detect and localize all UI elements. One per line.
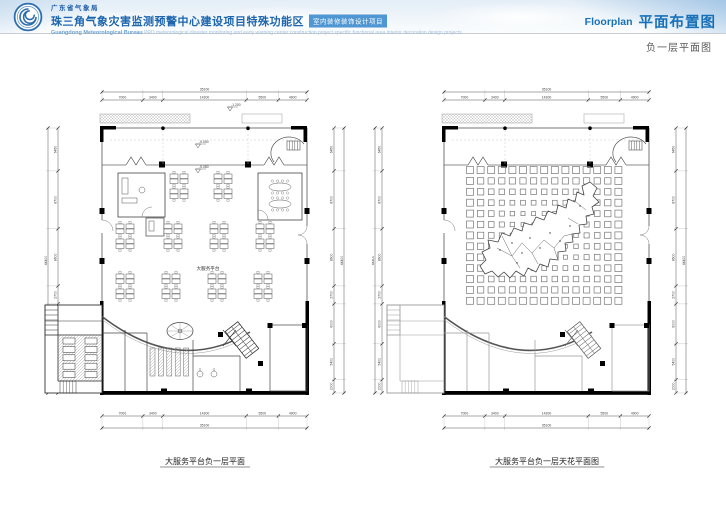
dim-label: 2000 bbox=[330, 382, 334, 390]
dim-label: 8700 bbox=[54, 196, 58, 204]
dim-label: 2000 bbox=[672, 382, 676, 390]
drawing-sheet: 广东省气象局 珠三角气象灾害监测预警中心建设项目特殊功能区室内装修装饰设计项目 … bbox=[0, 0, 726, 513]
floor-plan-drawing: 7000340014300550049003510070003400143005… bbox=[30, 78, 380, 498]
dim-label: 7000 bbox=[461, 412, 469, 416]
project-title-en: PRD meteorological disaster monitoring a… bbox=[144, 30, 462, 36]
bureau-logo-icon bbox=[13, 2, 43, 32]
plan-caption: 大服务平台负一层平面 bbox=[165, 456, 245, 466]
dim-label: 8700 bbox=[378, 196, 382, 204]
dim-label: 14300 bbox=[200, 412, 210, 416]
dim-label: 3400 bbox=[149, 96, 157, 100]
dim-label: 3400 bbox=[491, 412, 499, 416]
dim-label: 6450 bbox=[54, 146, 58, 154]
dim-label: 6450 bbox=[672, 146, 676, 154]
project-badge: 室内装修装饰设计项目 bbox=[309, 14, 387, 27]
dim-total-label: 35100 bbox=[542, 424, 552, 428]
dim-label: 6450 bbox=[330, 146, 334, 154]
elevation-label: -5.080 bbox=[199, 165, 209, 169]
dim-label: 4900 bbox=[631, 412, 639, 416]
dim-label: 5400 bbox=[330, 358, 334, 366]
dim-label: 14300 bbox=[542, 412, 552, 416]
dim-label: 14300 bbox=[200, 96, 210, 100]
dim-total-label: 35100 bbox=[542, 88, 552, 92]
dim-label: 5500 bbox=[601, 96, 609, 100]
dim-label: 2700 bbox=[330, 291, 334, 299]
dim-label: 7000 bbox=[461, 96, 469, 100]
dim-total-label: 44400 bbox=[44, 256, 48, 266]
dim-label: 6450 bbox=[378, 146, 382, 154]
sheet-header: 广东省气象局 珠三角气象灾害监测预警中心建设项目特殊功能区室内装修装饰设计项目 … bbox=[0, 0, 726, 34]
dim-label: 4900 bbox=[289, 96, 297, 100]
dim-label: 8700 bbox=[330, 196, 334, 204]
dim-label: 4900 bbox=[289, 412, 297, 416]
dim-label: 5500 bbox=[601, 412, 609, 416]
dim-label: 4900 bbox=[631, 96, 639, 100]
dim-total-label: 44400 bbox=[682, 256, 686, 266]
dim-label: 2700 bbox=[672, 291, 676, 299]
bureau-name-en: Guangdong Meteorological Bureau bbox=[51, 30, 143, 36]
elevation-label: -5.050 bbox=[199, 140, 209, 144]
dim-label: 7000 bbox=[119, 96, 127, 100]
plan-caption: 大服务平台负一层天花平面图 bbox=[495, 456, 599, 466]
project-title-en-row: Guangdong Meteorological Bureau PRD mete… bbox=[51, 30, 462, 36]
dim-label: 5500 bbox=[259, 412, 267, 416]
dim-label: 6000 bbox=[378, 320, 382, 328]
sheet-title-cn: 平面布置图 bbox=[639, 15, 717, 31]
dim-label: 5500 bbox=[259, 96, 267, 100]
dim-total-label: 35100 bbox=[200, 424, 210, 428]
sheet-title: Floorplan平面布置图 bbox=[585, 11, 716, 32]
dim-label: 8600 bbox=[54, 253, 58, 261]
dim-total-label: 44400 bbox=[372, 256, 375, 266]
sheet-title-en: Floorplan bbox=[585, 16, 633, 28]
dim-label: 6000 bbox=[330, 320, 334, 328]
bureau-name-cn: 广东省气象局 bbox=[51, 2, 462, 12]
dim-label: 8600 bbox=[378, 253, 382, 261]
project-title-cn: 珠三角气象灾害监测预警中心建设项目特殊功能区 bbox=[51, 16, 304, 28]
dim-label: 8700 bbox=[672, 196, 676, 204]
dim-label: 8600 bbox=[330, 253, 334, 261]
dim-label: 2700 bbox=[378, 291, 382, 299]
dim-label: 3400 bbox=[491, 96, 499, 100]
hall-label: 大服务平台 bbox=[197, 265, 220, 272]
dim-total-label: 35100 bbox=[200, 88, 210, 92]
dim-label: 2700 bbox=[54, 291, 58, 299]
elevation-label: -1.200 bbox=[231, 103, 241, 107]
dim-label: 8600 bbox=[672, 253, 676, 261]
dim-label: 5400 bbox=[672, 358, 676, 366]
sheet-subtitle: 负一层平面图 bbox=[646, 39, 712, 54]
ceiling-plan-drawing: 7000340014300550049003510070003400143005… bbox=[372, 78, 722, 498]
dim-label: 3400 bbox=[149, 412, 157, 416]
dim-label: 14300 bbox=[542, 96, 552, 100]
dim-label: 5400 bbox=[378, 358, 382, 366]
dim-label: 6000 bbox=[672, 320, 676, 328]
dim-label: 2000 bbox=[378, 382, 382, 390]
dim-label: 7000 bbox=[119, 412, 127, 416]
project-title-row: 珠三角气象灾害监测预警中心建设项目特殊功能区室内装修装饰设计项目 bbox=[51, 13, 462, 29]
dim-total-label: 44400 bbox=[340, 256, 344, 266]
